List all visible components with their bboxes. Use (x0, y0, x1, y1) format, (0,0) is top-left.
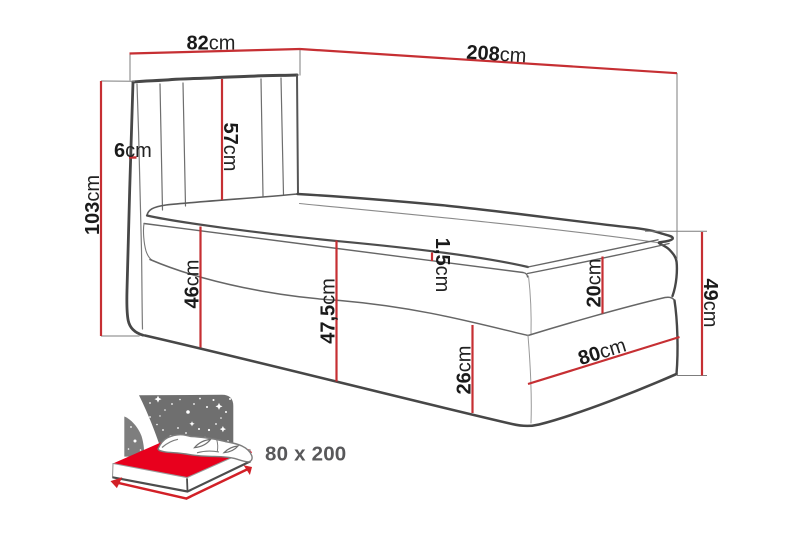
svg-text:80 x 200: 80 x 200 (265, 443, 346, 466)
svg-text:57cm: 57cm (219, 123, 241, 172)
svg-text:49cm: 49cm (699, 279, 721, 328)
svg-text:46cm: 46cm (182, 260, 204, 309)
svg-text:103cm: 103cm (82, 175, 104, 235)
svg-text:208cm: 208cm (466, 42, 527, 68)
svg-text:20cm: 20cm (584, 259, 606, 308)
svg-text:80cm: 80cm (576, 334, 629, 370)
svg-text:6cm: 6cm (114, 140, 152, 162)
svg-text:1,5cm: 1,5cm (431, 238, 453, 292)
svg-text:47,5cm: 47,5cm (318, 278, 340, 344)
svg-text:82cm: 82cm (187, 33, 236, 55)
svg-text:26cm: 26cm (454, 346, 476, 395)
